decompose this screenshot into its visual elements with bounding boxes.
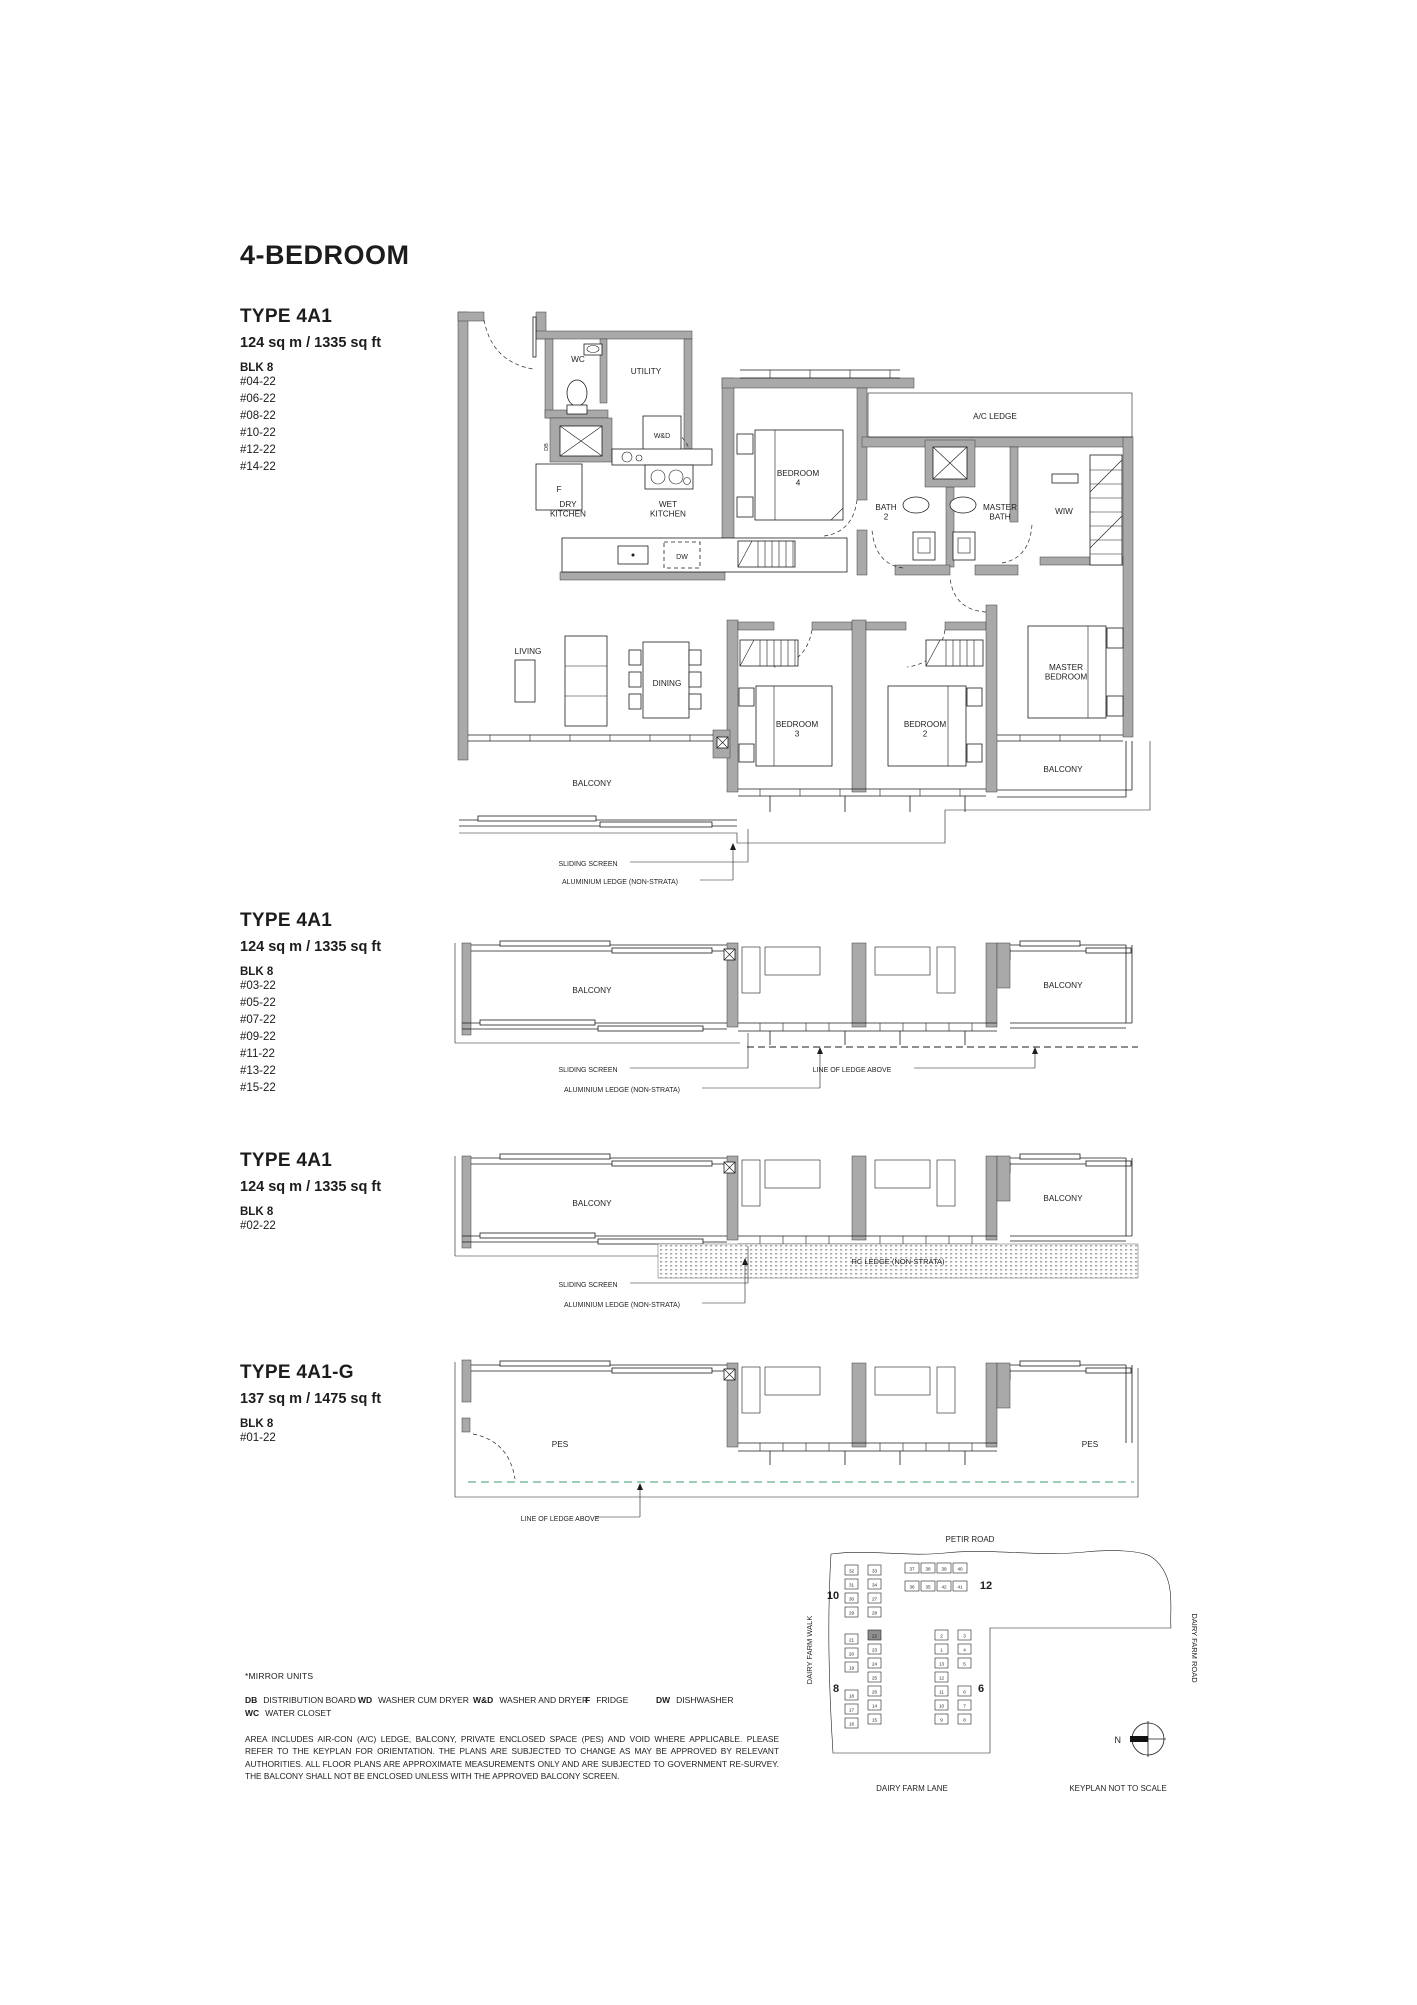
- room-label-pes: PES: [552, 1440, 569, 1449]
- keyplan-block-label: 6: [978, 1683, 984, 1695]
- type-block-2: TYPE 4A1 124 sq m / 1335 sq ft BLK 8 #03…: [240, 910, 381, 1097]
- keyplan-block-8: 212019181716222324252614158: [833, 1630, 881, 1728]
- room-label-dining: DINING: [653, 679, 682, 688]
- type-blk: BLK 8: [240, 966, 381, 978]
- legend-abbr: W&D: [473, 1695, 493, 1705]
- unit-number: #09-22: [240, 1029, 381, 1046]
- road-label-dairy-farm-road: DAIRY FARM ROAD: [1190, 1613, 1199, 1683]
- legend-abbr: WC: [245, 1708, 259, 1718]
- type-name: TYPE 4A1: [240, 910, 381, 932]
- label-line-of-ledge: LINE OF LEDGE ABOVE: [521, 1516, 600, 1523]
- unit-number: #04-22: [240, 374, 381, 391]
- legend-item: W&DWASHER AND DRYER: [473, 1695, 588, 1705]
- legend-label: WATER CLOSET: [265, 1708, 331, 1718]
- fixtures: [515, 344, 1123, 766]
- room-label-balcony: BALCONY: [1043, 765, 1083, 774]
- keyplan-unit-number: 22: [872, 1633, 878, 1638]
- keyplan-unit-number: 41: [957, 1584, 963, 1589]
- keyplan-unit-number: 16: [849, 1721, 855, 1726]
- unit-number: #14-22: [240, 459, 381, 476]
- legend-abbr: DW: [656, 1695, 670, 1705]
- road-label-petir: PETIR ROAD: [946, 1535, 995, 1544]
- room-label-utility: UTILITY: [631, 367, 662, 376]
- legend-label: DISHWASHER: [676, 1695, 733, 1705]
- keyplan-block-12: 373839403635424112: [905, 1563, 992, 1592]
- type-blk: BLK 8: [240, 1418, 381, 1430]
- room-label-wet-kitchen: WETKITCHEN: [650, 500, 686, 518]
- unit-number: #10-22: [240, 425, 381, 442]
- room-label-master-bedroom: MASTERBEDROOM: [1045, 663, 1087, 681]
- unit-number: #15-22: [240, 1080, 381, 1097]
- keyplan-unit-number: 8: [963, 1717, 966, 1722]
- room-label-balcony: BALCONY: [572, 1199, 612, 1208]
- legend-abbr: F: [585, 1695, 590, 1705]
- road-label-dairy-farm-lane: DAIRY FARM LANE: [876, 1784, 948, 1793]
- keyplan-unit-number: 32: [849, 1568, 855, 1573]
- unit-number: #12-22: [240, 442, 381, 459]
- keyplan-unit-number: 38: [925, 1566, 931, 1571]
- room-label-wd: W&D: [654, 433, 670, 440]
- north-compass-icon: N: [1115, 1721, 1167, 1757]
- type-block-1: TYPE 4A1 124 sq m / 1335 sq ft BLK 8 #04…: [240, 306, 381, 476]
- legend-item: WCWATER CLOSET: [245, 1708, 331, 1718]
- legend-label: FRIDGE: [596, 1695, 628, 1705]
- label-sliding-screen: SLIDING SCREEN: [558, 1282, 617, 1289]
- road-label-dairy-farm-walk: DAIRY FARM WALK: [805, 1616, 814, 1685]
- keyplan-block-6: 211312111093456786: [935, 1630, 984, 1724]
- keyplan-unit-number: 28: [872, 1610, 878, 1615]
- room-label-wiw: WIW: [1055, 507, 1073, 516]
- label-line-of-ledge: LINE OF LEDGE ABOVE: [813, 1067, 892, 1074]
- page-title: 4-BEDROOM: [240, 240, 410, 271]
- unit-number: #02-22: [240, 1218, 381, 1235]
- keyplan-unit-number: 18: [849, 1693, 855, 1698]
- main-leader-labels: SLIDING SCREEN ALUMINIUM LEDGE (NON-STRA…: [558, 829, 748, 886]
- keyplan-blocks: 3231302933342728103738394036354241122120…: [827, 1563, 992, 1728]
- keyplan-unit-number: 12: [939, 1675, 945, 1680]
- room-label-fridge: F: [556, 485, 561, 494]
- keyplan-unit-number: 25: [872, 1675, 878, 1680]
- strip-plan-3: RC LEDGE (NON-STRATA) BALCONY BALCONY SL…: [455, 1154, 1138, 1309]
- keyplan-unit-number: 6: [963, 1689, 966, 1694]
- unit-number: #03-22: [240, 978, 381, 995]
- keyplan: PETIR ROAD DAIRY FARM WALK DAIRY FARM RO…: [770, 1520, 1240, 1810]
- legend-abbr: WD: [358, 1695, 372, 1705]
- keyplan-unit-number: 34: [872, 1582, 878, 1587]
- keyplan-unit-number: 29: [849, 1610, 855, 1615]
- keyplan-unit-number: 42: [941, 1584, 947, 1589]
- keyplan-unit-number: 17: [849, 1707, 855, 1712]
- room-label-balcony: BALCONY: [1043, 981, 1083, 990]
- type-area: 124 sq m / 1335 sq ft: [240, 1179, 381, 1195]
- keyplan-unit-number: 15: [872, 1717, 878, 1722]
- disclaimer-text: AREA INCLUDES AIR-CON (A/C) LEDGE, BALCO…: [245, 1733, 779, 1783]
- room-label-pes: PES: [1082, 1440, 1099, 1449]
- keyplan-unit-number: 11: [939, 1689, 944, 1694]
- unit-number: #11-22: [240, 1046, 381, 1063]
- mirror-units-note: *MIRROR UNITS: [245, 1671, 313, 1681]
- type-name: TYPE 4A1: [240, 1150, 381, 1172]
- room-label-balcony: BALCONY: [572, 986, 612, 995]
- keyplan-unit-number: 19: [849, 1665, 855, 1670]
- keyplan-block-label: 8: [833, 1683, 839, 1695]
- keyplan-unit-number: 33: [872, 1568, 878, 1573]
- keyplan-unit-number: 9: [940, 1717, 943, 1722]
- keyplan-unit-number: 39: [941, 1566, 947, 1571]
- keyplan-unit-number: 26: [872, 1689, 878, 1694]
- room-label-bath2: BATH2: [875, 503, 896, 521]
- unit-number: #06-22: [240, 391, 381, 408]
- unit-number: #07-22: [240, 1012, 381, 1029]
- legend-item: WDWASHER CUM DRYER: [358, 1695, 469, 1705]
- keyplan-unit-number: 31: [849, 1582, 855, 1587]
- room-label-wc: WC: [571, 355, 585, 364]
- type-blk: BLK 8: [240, 362, 381, 374]
- type-name: TYPE 4A1: [240, 306, 381, 328]
- type-area: 137 sq m / 1475 sq ft: [240, 1391, 381, 1407]
- keyplan-unit-number: 14: [872, 1703, 878, 1708]
- keyplan-unit-number: 21: [849, 1637, 855, 1642]
- label-sliding-screen: SLIDING SCREEN: [558, 1067, 617, 1074]
- legend-label: WASHER AND DRYER: [499, 1695, 588, 1705]
- strip-plan-4: PES PES LINE OF LEDGE ABOVE: [455, 1360, 1138, 1523]
- keyplan-note: KEYPLAN NOT TO SCALE: [1069, 1784, 1166, 1793]
- unit-number: #01-22: [240, 1430, 381, 1447]
- keyplan-unit-number: 1: [940, 1647, 943, 1652]
- legend-item: DBDISTRIBUTION BOARD: [245, 1695, 356, 1705]
- type-name: TYPE 4A1-G: [240, 1362, 381, 1384]
- type-area: 124 sq m / 1335 sq ft: [240, 335, 381, 351]
- label-sliding-screen: SLIDING SCREEN: [558, 861, 617, 868]
- legend-abbr: DB: [245, 1695, 257, 1705]
- keyplan-unit-number: 2: [940, 1633, 943, 1638]
- keyplan-unit-number: 36: [909, 1584, 915, 1589]
- type-block-3: TYPE 4A1 124 sq m / 1335 sq ft BLK 8 #02…: [240, 1150, 381, 1235]
- keyplan-block-label: 10: [827, 1590, 839, 1602]
- legend-item: DWDISHWASHER: [656, 1695, 733, 1705]
- strip-plan-2: BALCONY BALCONY SLIDING SCREEN ALUMINIUM…: [455, 941, 1138, 1094]
- room-label-db: DB: [544, 443, 550, 451]
- label-aluminium-ledge: ALUMINIUM LEDGE (NON-STRATA): [562, 879, 678, 886]
- keyplan-unit-number: 40: [957, 1566, 963, 1571]
- keyplan-unit-number: 37: [909, 1566, 915, 1571]
- room-label-ac-ledge: A/C LEDGE: [973, 412, 1017, 421]
- north-label: N: [1115, 1735, 1122, 1745]
- unit-number: #05-22: [240, 995, 381, 1012]
- type-area: 124 sq m / 1335 sq ft: [240, 939, 381, 955]
- keyplan-unit-number: 7: [963, 1703, 966, 1708]
- room-label-dw: DW: [676, 554, 688, 561]
- label-aluminium-ledge: ALUMINIUM LEDGE (NON-STRATA): [564, 1087, 680, 1094]
- type-block-4: TYPE 4A1-G 137 sq m / 1475 sq ft BLK 8 #…: [240, 1362, 381, 1447]
- keyplan-unit-number: 3: [963, 1633, 966, 1638]
- keyplan-unit-number: 35: [925, 1584, 931, 1589]
- keyplan-unit-number: 5: [963, 1661, 966, 1666]
- main-floorplan: WC UTILITY W&D DB F DRYKITCHEN WETKITCHE…: [440, 295, 1150, 895]
- room-label-living: LIVING: [515, 647, 542, 656]
- legend-item: FFRIDGE: [585, 1695, 628, 1705]
- unit-number: #08-22: [240, 408, 381, 425]
- legend-label: DISTRIBUTION BOARD: [263, 1695, 356, 1705]
- keyplan-unit-number: 27: [872, 1596, 878, 1601]
- keyplan-unit-number: 10: [939, 1703, 945, 1708]
- keyplan-unit-number: 23: [872, 1647, 878, 1652]
- keyplan-unit-number: 4: [963, 1647, 966, 1652]
- keyplan-block-label: 12: [980, 1580, 992, 1592]
- keyplan-unit-number: 13: [939, 1661, 945, 1666]
- floorplan-page: 4-BEDROOM TYPE 4A1 124 sq m / 1335 sq ft…: [0, 0, 1417, 2005]
- keyplan-unit-number: 24: [872, 1661, 878, 1666]
- type-blk: BLK 8: [240, 1206, 381, 1218]
- keyplan-unit-number: 30: [849, 1596, 855, 1601]
- legend-label: WASHER CUM DRYER: [378, 1695, 469, 1705]
- room-label-balcony: BALCONY: [572, 779, 612, 788]
- label-aluminium-ledge: ALUMINIUM LEDGE (NON-STRATA): [564, 1302, 680, 1309]
- keyplan-unit-number: 20: [849, 1651, 855, 1656]
- legend: DBDISTRIBUTION BOARD WDWASHER CUM DRYER …: [245, 1695, 805, 1721]
- room-label-balcony: BALCONY: [1043, 1194, 1083, 1203]
- unit-number: #13-22: [240, 1063, 381, 1080]
- keyplan-block-10: 323130293334272810: [827, 1565, 881, 1617]
- label-rc-ledge: RC LEDGE (NON-STRATA): [851, 1257, 945, 1266]
- strip-plans: BALCONY BALCONY SLIDING SCREEN ALUMINIUM…: [440, 920, 1150, 1540]
